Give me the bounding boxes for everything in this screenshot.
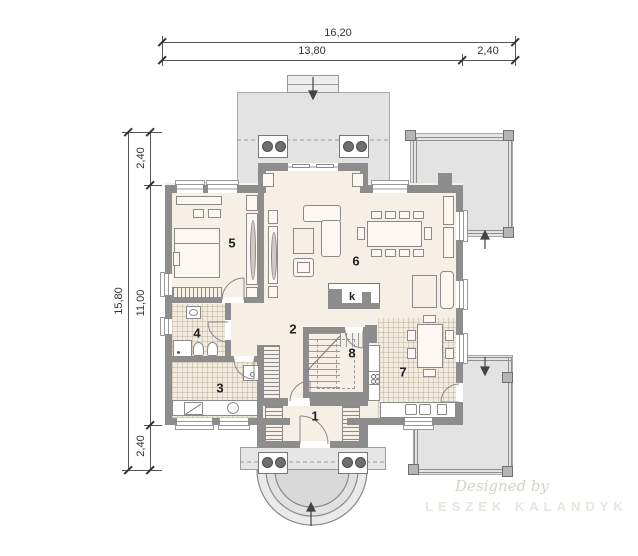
stool	[208, 209, 221, 218]
window-sill	[463, 210, 468, 242]
column	[275, 457, 286, 468]
dimension-line-top-total	[162, 42, 515, 43]
column	[343, 141, 354, 152]
room-label-bedroom: 5	[228, 236, 235, 251]
dining-chair	[424, 227, 432, 240]
wall-left	[165, 185, 172, 425]
bay-bench	[262, 173, 274, 187]
utility-sink	[227, 402, 239, 414]
door-leaf	[316, 164, 334, 168]
window-sill	[463, 333, 468, 364]
coffee-table	[293, 228, 314, 254]
terrace-post	[502, 466, 513, 477]
column	[262, 141, 273, 152]
dining-chair	[413, 211, 424, 219]
dimension-label-main-width: 13,80	[298, 45, 326, 57]
door-opening	[234, 356, 254, 362]
cooktop	[368, 371, 380, 385]
window-sill	[403, 425, 434, 430]
toilet	[193, 342, 204, 356]
porch-steps	[266, 470, 358, 516]
kitchen-chair	[407, 348, 416, 359]
table-dot	[250, 372, 255, 377]
railing	[413, 137, 414, 187]
column-pedestal	[258, 452, 288, 474]
column	[275, 141, 286, 152]
bed	[174, 228, 220, 278]
terrace-post	[405, 130, 416, 141]
terrace-post	[503, 130, 514, 141]
room-label-living: 6	[352, 254, 359, 269]
tall-cabinet	[246, 195, 258, 211]
watermark-designer-name: LESZEK KALANDYK	[425, 499, 628, 514]
side-table	[412, 275, 437, 308]
side-table	[243, 365, 259, 381]
bidet	[207, 342, 218, 356]
front-door-opening	[300, 441, 330, 448]
tall-cabinet	[246, 213, 258, 285]
window-sill	[218, 425, 250, 430]
terrace-door-opening	[456, 383, 463, 402]
dining-chair	[385, 211, 396, 219]
armchair-seat	[297, 262, 310, 273]
railing	[415, 469, 511, 470]
door-opening	[288, 398, 310, 406]
railing	[412, 137, 511, 138]
door-leaf	[292, 164, 310, 168]
dining-chair	[371, 211, 382, 219]
window-sill	[206, 180, 239, 185]
window-sill	[160, 272, 165, 297]
floor-plan-canvas: 16,20 13,80 2,40 15,80 2,40 11,00 2,40 1…	[0, 0, 638, 556]
window-sill	[160, 317, 165, 336]
fireplace-label: k	[349, 291, 355, 303]
fireplace-body	[342, 303, 380, 309]
door-opening	[222, 297, 244, 303]
appliance	[437, 404, 447, 415]
tall-cabinet	[268, 286, 278, 298]
column	[355, 457, 366, 468]
dining-chair	[357, 227, 365, 240]
dimension-label-bottom-height: 2,40	[135, 435, 147, 456]
bed-pillow-line	[174, 243, 220, 244]
kitchen-chair	[445, 348, 454, 359]
railing	[511, 137, 512, 233]
tall-cabinet	[268, 226, 278, 284]
column-pedestal	[258, 135, 288, 158]
fireplace-body	[362, 292, 371, 303]
bathroom-sink	[186, 306, 201, 319]
sideboard	[443, 227, 454, 258]
window	[456, 335, 463, 362]
room-label-stairs: 8	[348, 346, 355, 361]
dining-chair	[413, 249, 424, 257]
room-label-vestibule: 1	[311, 409, 318, 424]
sideboard	[443, 196, 454, 225]
shower-drain	[177, 351, 180, 354]
kitchen-sink	[405, 404, 417, 415]
dimension-label-top-height: 2,40	[135, 147, 147, 168]
window	[456, 212, 463, 240]
corner-sofa	[321, 220, 341, 257]
cabinet-detail	[271, 232, 277, 280]
window	[165, 274, 172, 295]
window	[373, 185, 407, 193]
nightstand	[173, 252, 180, 266]
cabinet-detail	[250, 220, 256, 280]
wall-kitchen-stub	[365, 325, 377, 343]
chimney-canopy-divider	[287, 84, 339, 85]
kitchen-chair	[423, 315, 436, 323]
window-sill	[175, 180, 205, 185]
room-label-hall: 2	[289, 322, 296, 337]
door-opening	[225, 320, 231, 340]
column	[262, 457, 273, 468]
tall-cabinet	[246, 287, 258, 298]
room-label-bathroom: 4	[193, 326, 200, 341]
window	[177, 418, 212, 425]
column-pedestal	[339, 135, 369, 158]
kitchen-table	[417, 324, 443, 368]
kitchen-chair	[407, 330, 416, 341]
stairs-dashed-divider	[336, 339, 338, 389]
column-pedestal	[338, 452, 368, 474]
dimension-label-main-height: 11,00	[135, 290, 147, 317]
dining-chair	[371, 249, 382, 257]
railing	[415, 472, 511, 473]
armchair	[293, 258, 314, 277]
tall-cabinet	[268, 210, 278, 224]
window	[165, 319, 172, 334]
sink-bowl	[189, 309, 198, 316]
dining-chair	[399, 249, 410, 257]
porch-steps	[257, 470, 367, 525]
window-sill	[175, 425, 214, 430]
railing	[416, 137, 417, 187]
kitchen-chair	[445, 330, 454, 341]
window	[405, 418, 432, 425]
shower	[173, 340, 192, 357]
column	[342, 457, 353, 468]
railing	[508, 137, 509, 233]
hall-closet	[263, 345, 280, 400]
washing-machine	[184, 402, 203, 415]
dimension-label-total-width: 16,20	[324, 27, 352, 39]
stool	[193, 209, 204, 218]
window	[220, 418, 248, 425]
dresser	[176, 196, 222, 205]
watermark-designed-by: Designed by	[455, 477, 549, 495]
window	[177, 185, 203, 193]
column	[356, 141, 367, 152]
window-sill	[371, 180, 409, 185]
dimension-line-left-total	[128, 132, 129, 470]
room-label-kitchen: 7	[399, 365, 406, 380]
bay-bench	[352, 173, 364, 187]
window	[456, 281, 463, 308]
room-label-utility: 3	[216, 381, 223, 396]
terrace-post	[503, 227, 514, 238]
wall-bedroom-living	[258, 193, 264, 298]
porch-steps	[275, 470, 349, 507]
terrace-post	[502, 372, 513, 383]
railing	[412, 140, 511, 141]
dimension-label-total-height: 15,80	[113, 287, 125, 315]
dining-table	[367, 221, 422, 247]
dimension-label-side-width: 2,40	[477, 45, 498, 57]
window-sill	[463, 279, 468, 310]
terrace-post	[408, 464, 419, 475]
dining-chair	[385, 249, 396, 257]
kitchen-sink	[419, 404, 431, 415]
window	[208, 185, 237, 193]
chimney	[438, 173, 452, 186]
fireplace-body	[328, 289, 342, 309]
burner	[375, 379, 380, 384]
wall-hall-vestibule-left	[257, 398, 288, 406]
bench-sofa	[440, 271, 454, 309]
kitchen-chair	[423, 369, 436, 377]
wall-hall-vestibule-right	[310, 398, 368, 406]
dining-chair	[399, 211, 410, 219]
